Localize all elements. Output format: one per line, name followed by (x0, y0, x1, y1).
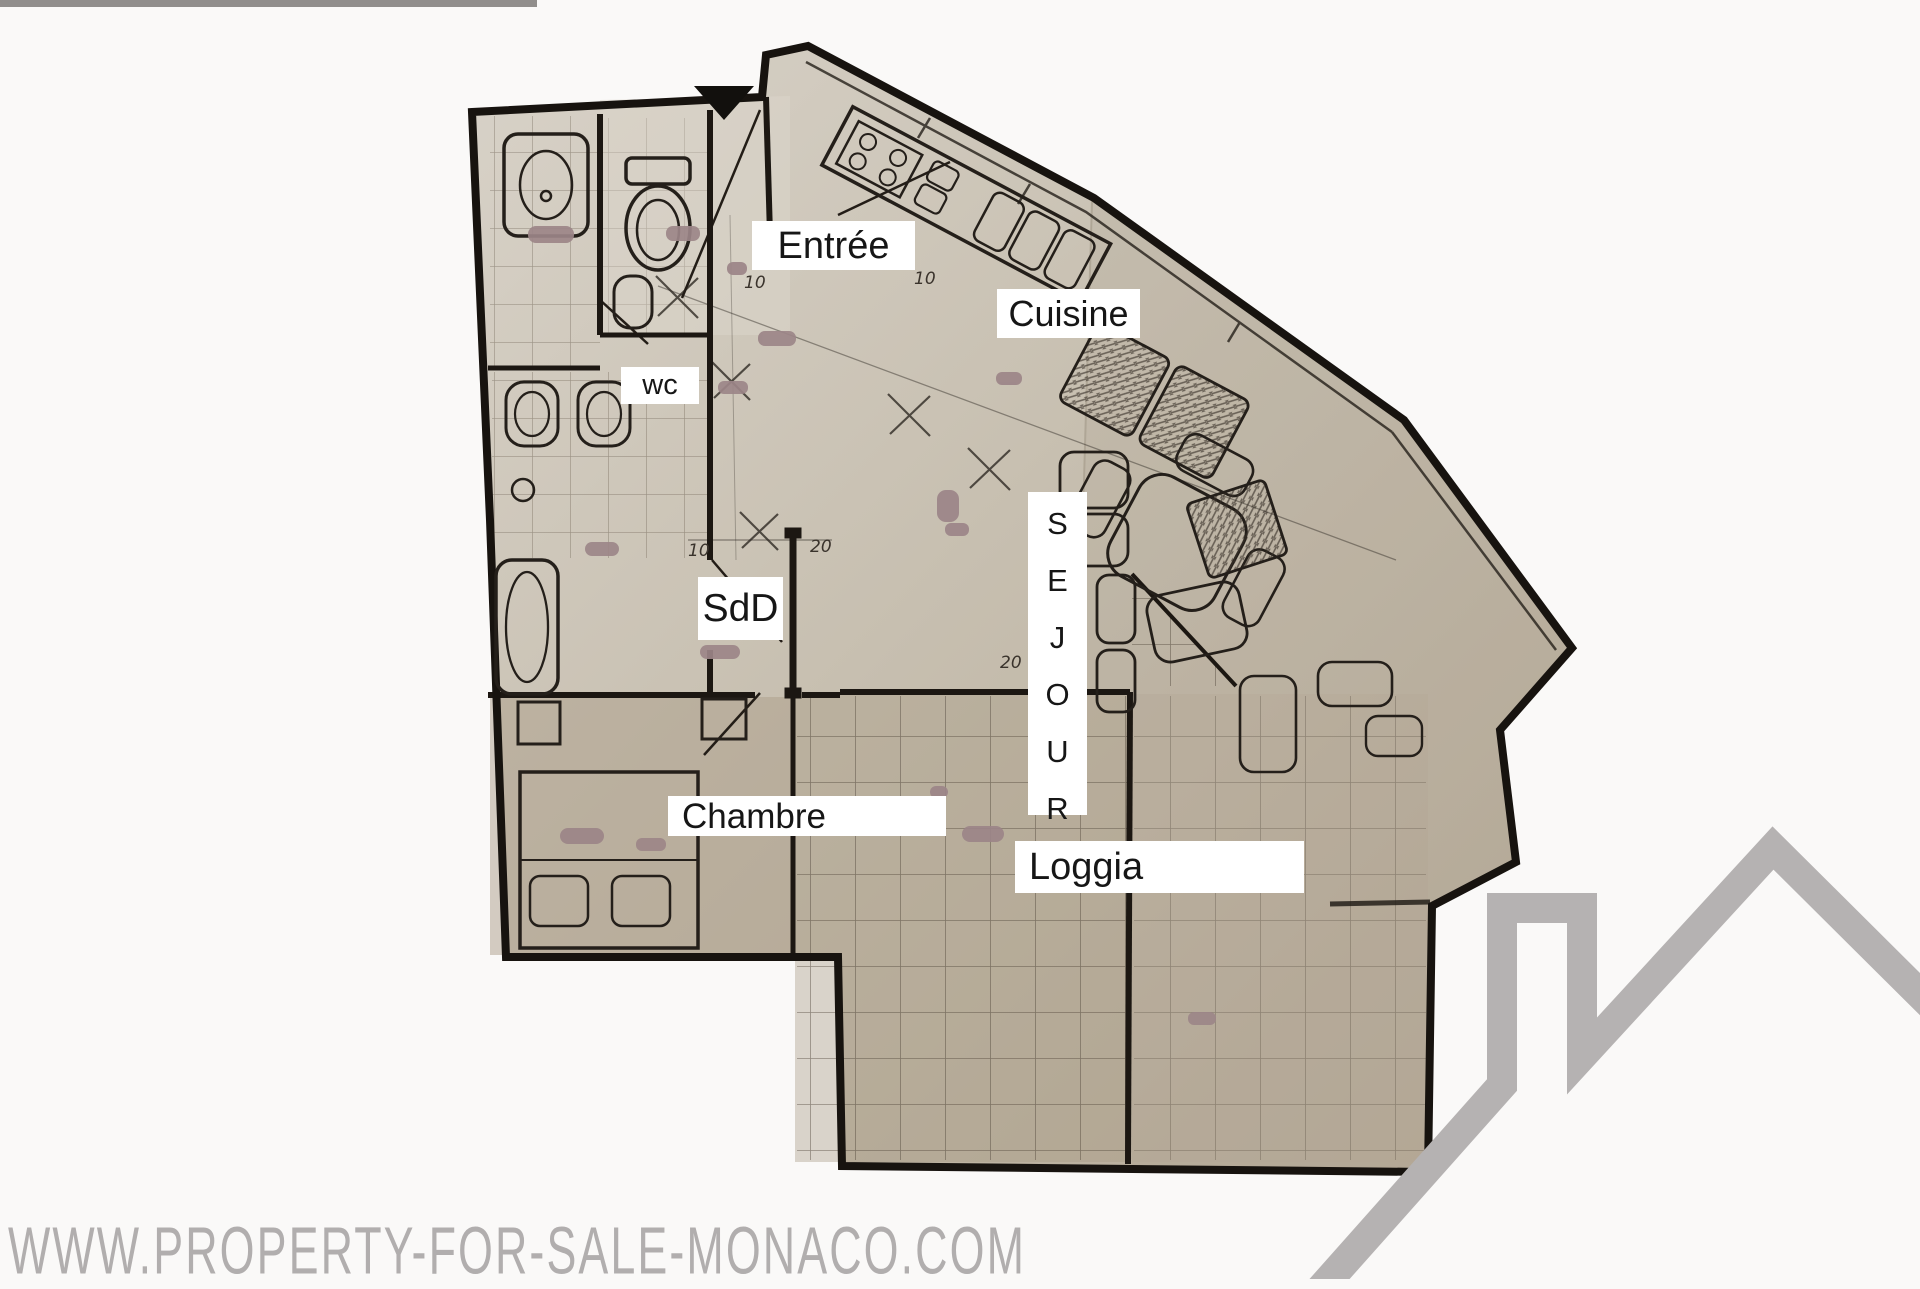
room-label-sdd: SdD (698, 577, 783, 640)
room-label-sejour: SEJOUR (1028, 492, 1087, 815)
svg-text:10: 10 (688, 541, 710, 561)
room-label-chambre: Chambre (668, 796, 946, 836)
watermark-url: WWW.PROPERTY-FOR-SALE-MONACO.COM (8, 1212, 1026, 1289)
room-label-loggia: Loggia (1015, 841, 1304, 893)
svg-text:20: 20 (1000, 653, 1022, 673)
room-label-wc: wc (621, 367, 699, 404)
room-label-entree: Entrée (752, 221, 915, 270)
svg-text:10: 10 (914, 269, 936, 289)
room-label-cuisine: Cuisine (997, 289, 1140, 338)
svg-text:10: 10 (744, 273, 766, 293)
floor-plan: 10 10 10 20 20 (0, 0, 1920, 1279)
svg-text:20: 20 (810, 537, 832, 557)
